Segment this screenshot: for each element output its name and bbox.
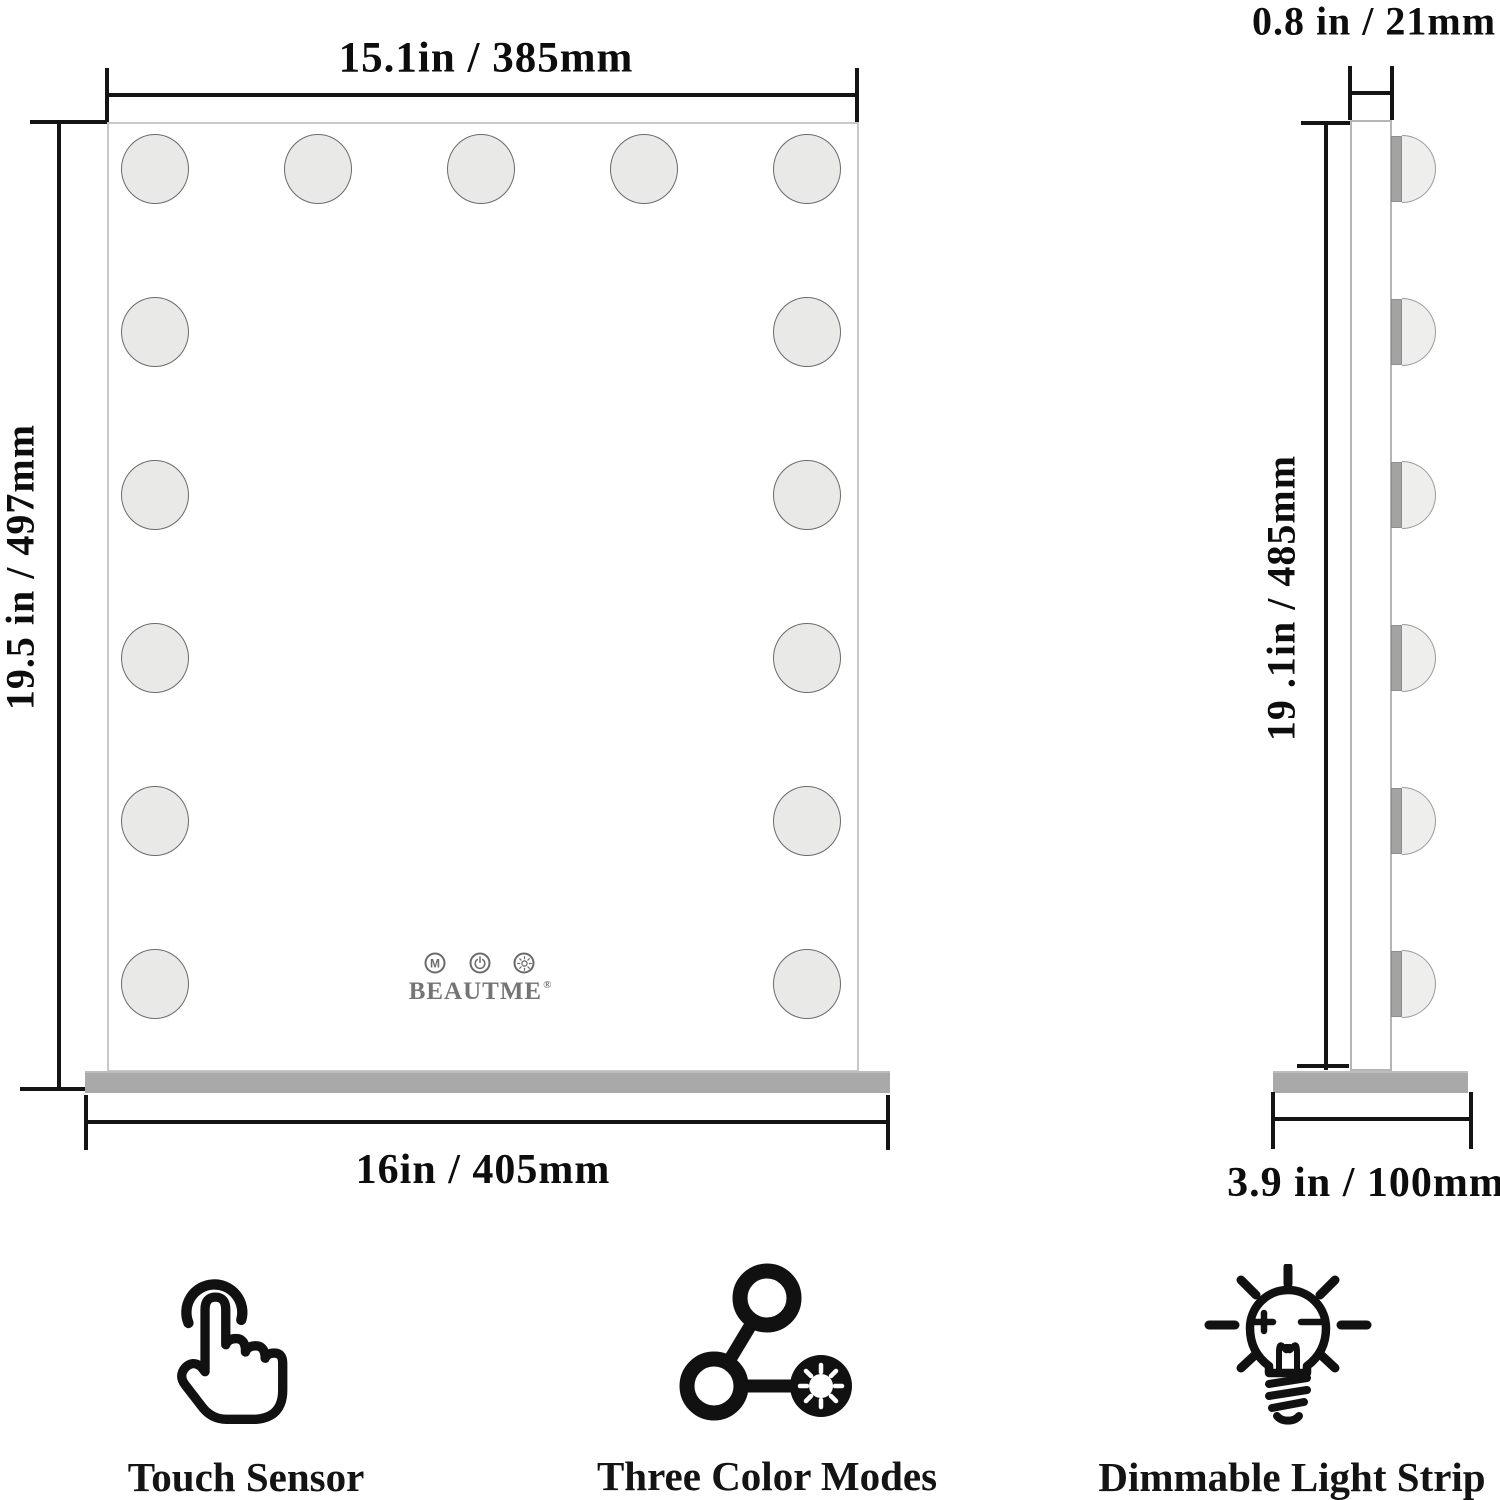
side-depth-dimension-label: 0.8 in / 21mm bbox=[1252, 0, 1496, 45]
brand-logo: BEAUTME® bbox=[409, 978, 552, 1006]
feature-label-dimmable-light-strip: Dimmable Light Strip bbox=[1098, 1453, 1485, 1500]
front-width-dimension-line bbox=[107, 93, 858, 97]
light-bulb bbox=[773, 297, 841, 367]
brightness-icon bbox=[516, 955, 532, 971]
three-color-modes-icon bbox=[664, 1258, 876, 1438]
side-height-dimension-tick-bottom bbox=[1297, 1064, 1349, 1068]
light-bulb bbox=[447, 134, 515, 204]
base-width-dimension-label: 16in / 405mm bbox=[356, 1146, 611, 1194]
light-bulb bbox=[773, 786, 841, 856]
light-strip-segment bbox=[1391, 299, 1402, 365]
power-icon bbox=[473, 956, 488, 971]
light-bulb bbox=[610, 134, 678, 204]
light-strip-segment bbox=[1391, 462, 1402, 528]
touch-sensor-icon bbox=[161, 1268, 306, 1436]
mode-button: M bbox=[425, 953, 446, 974]
power-button bbox=[470, 953, 491, 974]
product-dimension-diagram: 15.1in / 385mm 19.5 in / 497mm M BEAUTME… bbox=[0, 0, 1500, 1500]
light-bulb bbox=[121, 623, 189, 693]
light-bulb bbox=[121, 460, 189, 530]
light-bulb bbox=[121, 786, 189, 856]
front-width-dimension-label: 15.1in / 385mm bbox=[339, 34, 634, 83]
light-bulb-side bbox=[1402, 950, 1436, 1018]
light-bulb bbox=[121, 134, 189, 204]
front-height-dimension-line bbox=[57, 122, 61, 1091]
mirror-side-view bbox=[1350, 120, 1392, 1071]
light-bulb-side bbox=[1402, 787, 1436, 855]
light-strip-segment bbox=[1391, 136, 1402, 202]
mode-button-label: M bbox=[430, 957, 440, 969]
mirror-base-front bbox=[85, 1071, 890, 1093]
light-bulb bbox=[773, 460, 841, 530]
side-height-dimension-tick-top bbox=[1301, 121, 1351, 125]
light-bulb bbox=[773, 949, 841, 1019]
feature-label-touch-sensor: Touch Sensor bbox=[128, 1453, 365, 1500]
front-width-dimension-tick-right bbox=[855, 68, 859, 122]
front-width-dimension-tick-left bbox=[105, 68, 109, 122]
light-bulb-side bbox=[1402, 298, 1436, 366]
light-bulb-side bbox=[1402, 624, 1436, 692]
front-height-dimension-label: 19.5 in / 497mm bbox=[0, 424, 44, 710]
light-bulb bbox=[284, 134, 352, 204]
light-strip-segment bbox=[1391, 625, 1402, 691]
base-depth-dimension-line bbox=[1273, 1117, 1471, 1121]
mirror-front-view bbox=[107, 122, 859, 1072]
light-strip-segment bbox=[1391, 951, 1402, 1017]
base-depth-dimension-label: 3.9 in / 100mm bbox=[1227, 1159, 1500, 1207]
light-bulb bbox=[121, 297, 189, 367]
light-bulb-side bbox=[1402, 135, 1436, 203]
mirror-base-side bbox=[1273, 1071, 1468, 1093]
front-height-dimension-tick-top bbox=[30, 120, 107, 124]
dimmable-light-strip-icon bbox=[1203, 1264, 1373, 1436]
registered-mark: ® bbox=[543, 979, 552, 991]
side-depth-dimension-line bbox=[1350, 91, 1392, 95]
side-height-dimension-line bbox=[1324, 121, 1328, 1070]
light-bulb-side bbox=[1402, 461, 1436, 529]
base-width-dimension-line bbox=[86, 1120, 888, 1124]
side-height-dimension-label: 19 .1in / 485mm bbox=[1258, 455, 1305, 741]
brightness-button bbox=[514, 953, 535, 974]
light-bulb bbox=[121, 949, 189, 1019]
feature-label-three-color-modes: Three Color Modes bbox=[597, 1452, 937, 1500]
light-bulb bbox=[773, 134, 841, 204]
light-bulb bbox=[773, 623, 841, 693]
light-strip-segment bbox=[1391, 788, 1402, 854]
brand-name: BEAUTME bbox=[409, 978, 542, 1005]
